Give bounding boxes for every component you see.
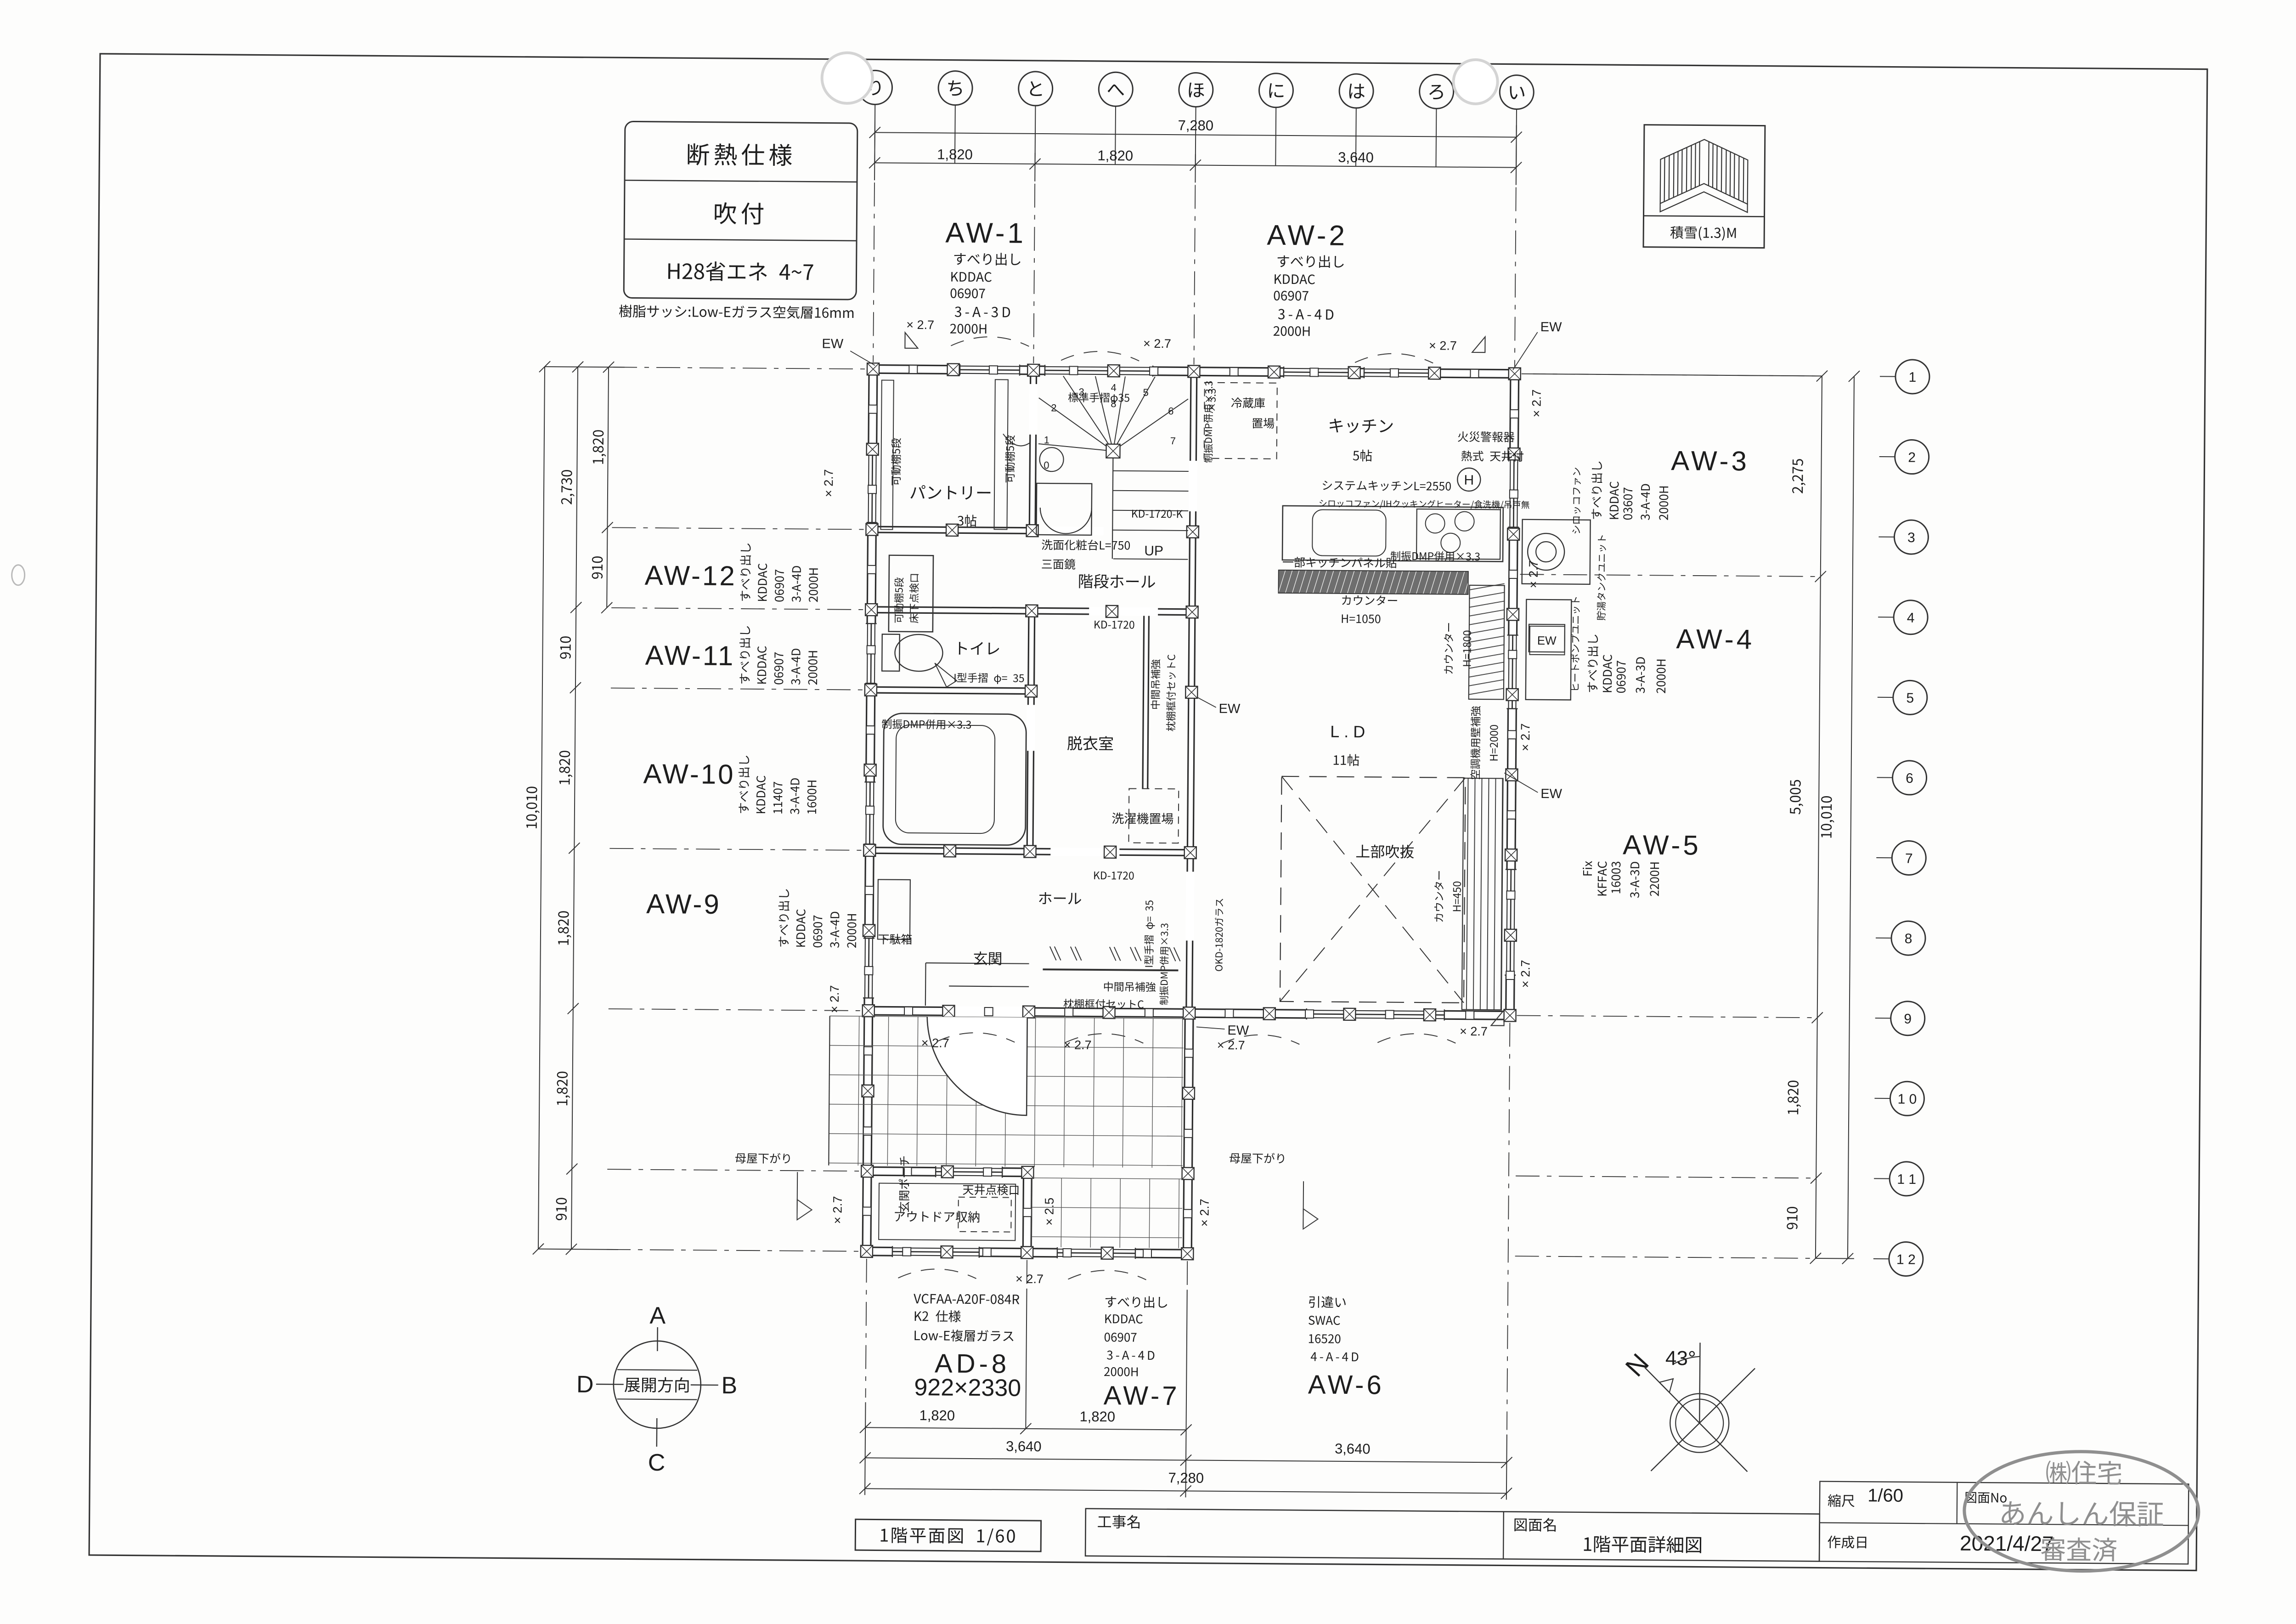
svg-text:43°: 43° — [1665, 1347, 1696, 1369]
svg-text:7: 7 — [1170, 435, 1176, 447]
svg-text:AW-2: AW-2 — [1267, 220, 1348, 252]
svg-text:1/60: 1/60 — [1867, 1485, 1903, 1506]
svg-text:× 2.7: × 2.7 — [1429, 339, 1457, 352]
svg-text:2: 2 — [1908, 450, 1916, 465]
svg-text:EW: EW — [1227, 1023, 1249, 1038]
svg-text:AW-1: AW-1 — [945, 217, 1026, 249]
svg-text:7: 7 — [1905, 851, 1913, 866]
svg-text:EW: EW — [1219, 702, 1241, 716]
svg-text:AW-5: AW-5 — [1623, 829, 1701, 860]
svg-text:× 2.7: × 2.7 — [1518, 723, 1532, 751]
svg-text:EW: EW — [822, 337, 844, 351]
svg-text:7,280: 7,280 — [1178, 117, 1213, 134]
svg-text:3,640: 3,640 — [1006, 1438, 1042, 1455]
svg-text:× 2.7: × 2.7 — [830, 1196, 844, 1224]
svg-text:AW-9: AW-9 — [646, 888, 721, 920]
svg-text:8: 8 — [1111, 398, 1116, 409]
svg-text:3: 3 — [1078, 386, 1084, 398]
svg-text:1,820: 1,820 — [919, 1407, 955, 1424]
svg-text:× 2.7: × 2.7 — [822, 469, 835, 497]
svg-text:7,280: 7,280 — [1168, 1470, 1204, 1486]
svg-text:4: 4 — [1111, 382, 1117, 393]
svg-text:8: 8 — [1905, 931, 1912, 946]
svg-text:EW: EW — [1537, 634, 1557, 647]
svg-text:× 2.5: × 2.5 — [1042, 1198, 1056, 1226]
svg-text:1,820: 1,820 — [1079, 1409, 1115, 1425]
svg-text:1,820: 1,820 — [937, 146, 973, 163]
svg-text:× 2.7: × 2.7 — [1064, 1038, 1092, 1052]
svg-text:4: 4 — [1907, 611, 1915, 626]
svg-text:AW-6: AW-6 — [1308, 1369, 1384, 1400]
svg-text:1,820: 1,820 — [1097, 147, 1133, 164]
svg-text:9: 9 — [1904, 1012, 1912, 1027]
svg-text:1 0: 1 0 — [1897, 1092, 1917, 1107]
svg-text:× 2.7: × 2.7 — [1527, 560, 1540, 588]
svg-text:× 2.7: × 2.7 — [1143, 337, 1171, 351]
svg-text:× 2.7: × 2.7 — [828, 985, 841, 1013]
svg-text:1 1: 1 1 — [1897, 1172, 1916, 1187]
svg-text:L.D: L.D — [1330, 722, 1370, 741]
svg-text:EW: EW — [1540, 320, 1563, 334]
svg-text:AW-10: AW-10 — [643, 758, 735, 790]
svg-text:922×2330: 922×2330 — [914, 1374, 1021, 1402]
svg-text:× 2.7: × 2.7 — [906, 318, 934, 332]
svg-text:C: C — [648, 1449, 666, 1476]
svg-text:1: 1 — [1044, 434, 1049, 446]
svg-text:AW-11: AW-11 — [645, 640, 735, 671]
svg-text:AW-7: AW-7 — [1104, 1381, 1180, 1411]
svg-text:AW-4: AW-4 — [1676, 623, 1754, 655]
svg-text:1 2: 1 2 — [1896, 1252, 1916, 1267]
svg-text:D: D — [576, 1371, 594, 1398]
svg-text:AW-3: AW-3 — [1671, 445, 1749, 476]
svg-text:2: 2 — [1051, 402, 1056, 413]
svg-text:× 2.7: × 2.7 — [1197, 1199, 1211, 1227]
svg-text:× 2.7: × 2.7 — [1460, 1024, 1488, 1038]
svg-text:1: 1 — [1908, 370, 1916, 385]
svg-text:× 2.7: × 2.7 — [1518, 960, 1532, 988]
svg-text:AW-12: AW-12 — [644, 560, 737, 591]
svg-text:× 2.7: × 2.7 — [1015, 1272, 1044, 1286]
svg-text:6: 6 — [1168, 405, 1173, 417]
svg-text:3: 3 — [1907, 530, 1915, 545]
svg-text:5: 5 — [1143, 387, 1148, 398]
svg-text:3,640: 3,640 — [1335, 1441, 1371, 1457]
svg-text:B: B — [721, 1372, 737, 1399]
svg-text:3,640: 3,640 — [1338, 149, 1374, 166]
svg-text:H: H — [1464, 473, 1474, 488]
svg-text:EW: EW — [1540, 787, 1563, 801]
svg-text:× 2.7: × 2.7 — [1529, 389, 1543, 417]
svg-text:A: A — [649, 1302, 666, 1329]
svg-text:0: 0 — [1044, 459, 1049, 471]
svg-text:6: 6 — [1906, 771, 1913, 786]
svg-text:UP: UP — [1144, 543, 1163, 559]
svg-text:5: 5 — [1906, 690, 1914, 706]
